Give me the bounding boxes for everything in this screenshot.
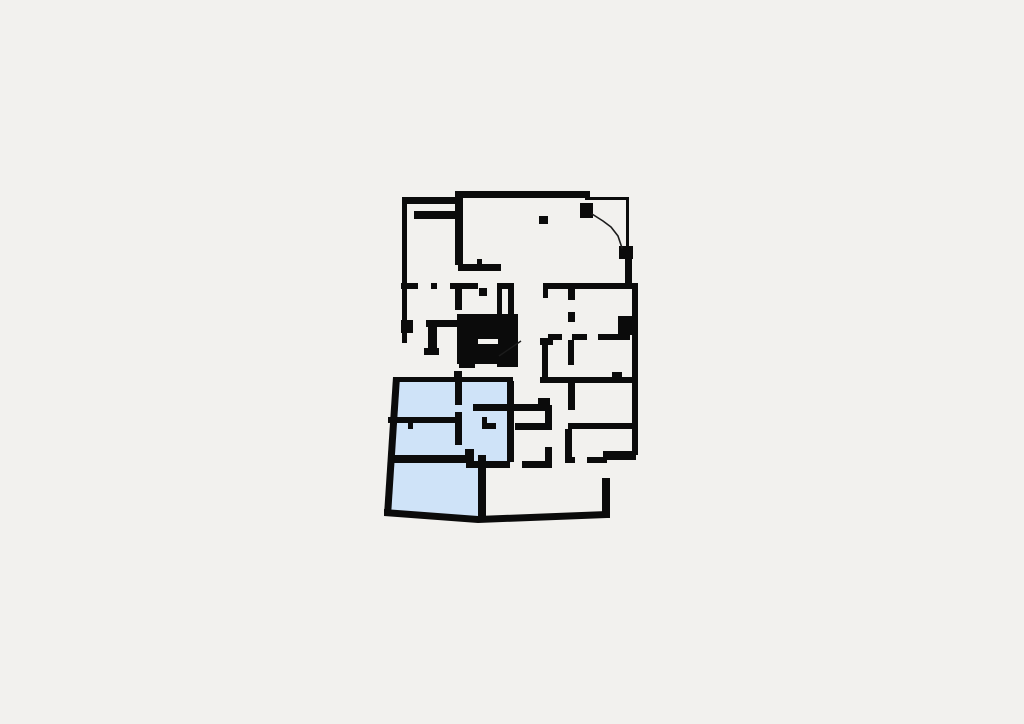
- wall-segment: [455, 288, 462, 310]
- floor-plan-page: [0, 0, 1024, 724]
- wall-segment: [465, 449, 474, 463]
- wall-segment: [388, 417, 455, 423]
- wall-segment: [603, 451, 636, 460]
- wall-segment: [431, 283, 437, 289]
- wall-segment: [455, 191, 590, 198]
- wall-segment: [568, 383, 575, 410]
- wall-segment: [565, 457, 575, 463]
- wall-segment: [401, 320, 413, 327]
- wall-segment: [408, 423, 413, 429]
- stair-core-foot: [459, 362, 475, 368]
- wall-segment: [393, 377, 513, 382]
- wall-segment: [455, 198, 463, 265]
- wall-segment: [455, 382, 462, 405]
- wall-segment: [540, 338, 553, 345]
- wall-segment: [479, 288, 487, 296]
- wall-segment: [580, 203, 593, 218]
- wall-segment: [455, 412, 462, 445]
- wall-segment: [612, 372, 622, 377]
- wall-segment: [497, 288, 502, 315]
- wall-segment: [414, 211, 458, 219]
- wall-segment: [545, 405, 552, 430]
- wall-segment: [426, 320, 458, 327]
- wall-segment: [568, 423, 633, 429]
- wall-segment: [454, 371, 462, 378]
- wall-segment: [450, 283, 478, 289]
- wall-segment: [458, 264, 501, 271]
- wall-segment: [507, 381, 514, 462]
- wall-segment: [568, 340, 574, 365]
- wall-segment: [508, 283, 514, 315]
- wall-segment: [626, 199, 629, 249]
- wall-segment: [540, 377, 633, 383]
- wall-segment: [565, 429, 572, 458]
- wall-segment: [538, 398, 550, 405]
- wall-segment: [388, 455, 468, 463]
- wall-segment: [545, 447, 552, 461]
- wall-segment: [424, 348, 439, 355]
- wall-segment: [543, 283, 548, 298]
- wall-segment: [401, 283, 418, 289]
- wall-segment: [568, 288, 575, 300]
- wall-segment: [522, 461, 552, 468]
- wall-segment: [543, 283, 638, 289]
- stair-core-foot: [497, 362, 518, 367]
- wall-segment: [478, 455, 486, 518]
- wall-segment: [587, 457, 607, 463]
- wall-segment: [477, 259, 482, 264]
- wall-segment: [482, 423, 496, 429]
- wall-segment: [598, 334, 630, 340]
- wall-segment: [402, 197, 462, 204]
- floor-plan-canvas: [0, 0, 1024, 724]
- wall-segment: [482, 417, 487, 424]
- stair-core-slot: [478, 339, 498, 344]
- wall-segment: [632, 288, 638, 455]
- wall-segment: [568, 312, 575, 322]
- wall-segment: [618, 316, 632, 335]
- wall-segment: [585, 197, 629, 200]
- wall-segment: [572, 334, 587, 340]
- wall-segment: [539, 216, 548, 224]
